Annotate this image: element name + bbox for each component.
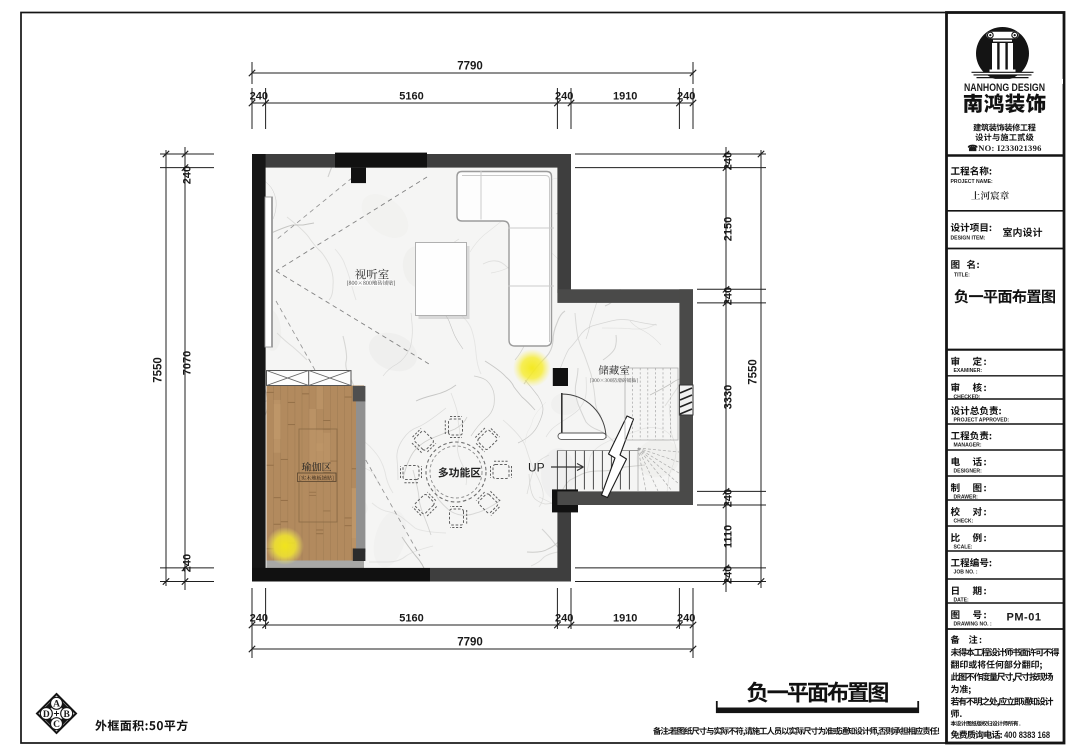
svg-text:DESIGNER:: DESIGNER: bbox=[954, 469, 983, 475]
svg-text:240: 240 bbox=[677, 91, 695, 103]
svg-text:PROJECT NAME:: PROJECT NAME: bbox=[951, 179, 993, 185]
svg-text:☎NO: I233021396: ☎NO: I233021396 bbox=[967, 143, 1041, 153]
svg-text:240: 240 bbox=[723, 489, 735, 507]
svg-text:DRAWING NO. :: DRAWING NO. : bbox=[954, 622, 993, 628]
svg-text:PROJECT APPROVED:: PROJECT APPROVED: bbox=[954, 418, 1010, 424]
svg-text:240: 240 bbox=[250, 91, 268, 103]
svg-text:240: 240 bbox=[555, 91, 573, 103]
svg-text:240: 240 bbox=[250, 613, 268, 625]
svg-text:240: 240 bbox=[677, 613, 695, 625]
svg-text:240: 240 bbox=[723, 566, 735, 584]
svg-text:5160: 5160 bbox=[399, 91, 423, 103]
svg-text:7070: 7070 bbox=[182, 351, 194, 375]
svg-text:TITLE:: TITLE: bbox=[954, 273, 970, 279]
svg-text:PM-01: PM-01 bbox=[1007, 612, 1042, 624]
svg-text:7790: 7790 bbox=[457, 61, 483, 73]
svg-text:SCALE:: SCALE: bbox=[954, 545, 973, 551]
svg-text:NANHONG DESIGN: NANHONG DESIGN bbox=[964, 82, 1045, 94]
svg-text:7790: 7790 bbox=[457, 637, 483, 649]
svg-text:5160: 5160 bbox=[399, 613, 423, 625]
svg-text:CHECKED:: CHECKED: bbox=[954, 394, 981, 400]
svg-text:7550: 7550 bbox=[153, 357, 165, 383]
svg-text:UP: UP bbox=[528, 461, 545, 475]
svg-text:MANAGER:: MANAGER: bbox=[954, 443, 982, 449]
svg-text:EXAMINER:: EXAMINER: bbox=[954, 368, 983, 374]
svg-text:240: 240 bbox=[182, 554, 194, 572]
svg-text:DRAWER:: DRAWER: bbox=[954, 495, 979, 501]
svg-text:B: B bbox=[64, 710, 71, 720]
svg-text:240: 240 bbox=[723, 287, 735, 305]
svg-text:1910: 1910 bbox=[613, 91, 637, 103]
svg-text:240: 240 bbox=[182, 166, 194, 184]
svg-text:1910: 1910 bbox=[613, 613, 637, 625]
svg-text:D: D bbox=[43, 710, 50, 720]
svg-text:C: C bbox=[53, 720, 60, 730]
svg-text:240: 240 bbox=[555, 613, 573, 625]
svg-text:2150: 2150 bbox=[723, 217, 735, 241]
svg-text:3330: 3330 bbox=[723, 385, 735, 409]
svg-text:400 8383 168: 400 8383 168 bbox=[1004, 730, 1050, 740]
svg-text:CHECK:: CHECK: bbox=[954, 519, 974, 525]
svg-text:7550: 7550 bbox=[748, 359, 760, 385]
svg-text:DATE:: DATE: bbox=[954, 598, 969, 604]
svg-text:JOB NO. :: JOB NO. : bbox=[954, 570, 978, 576]
svg-text:1110: 1110 bbox=[723, 525, 735, 548]
svg-text:DESIGN ITEM:: DESIGN ITEM: bbox=[951, 236, 986, 242]
svg-text:240: 240 bbox=[723, 152, 735, 170]
svg-text:A: A bbox=[53, 700, 60, 710]
